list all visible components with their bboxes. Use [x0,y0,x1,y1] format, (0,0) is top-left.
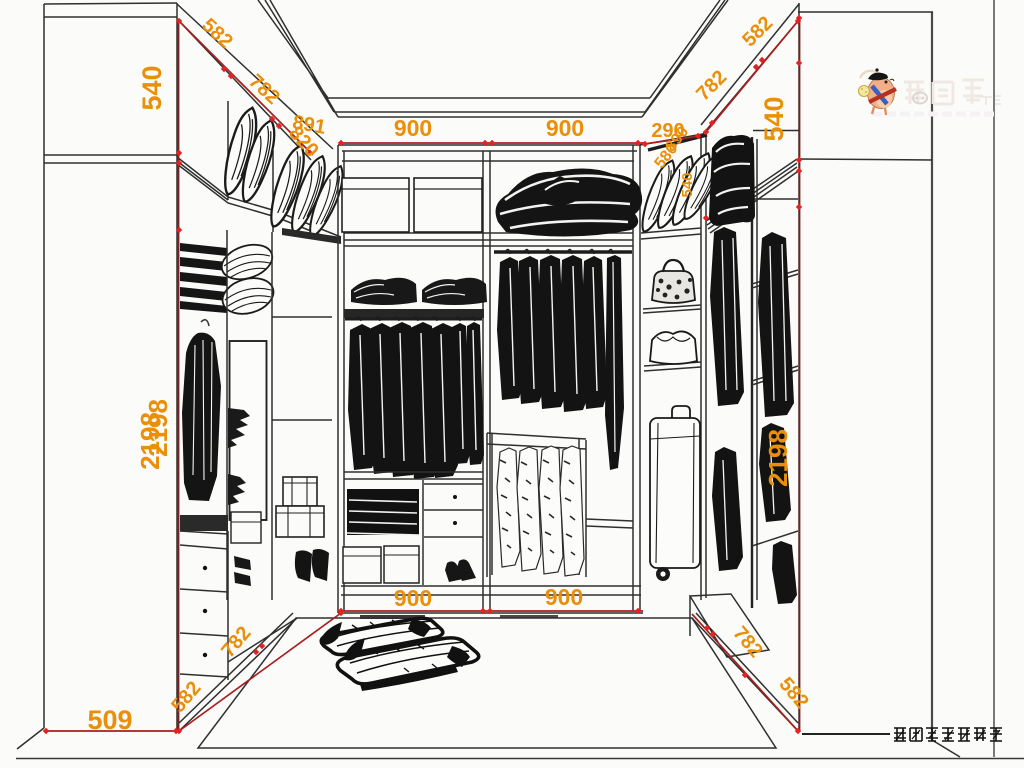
svg-text:540: 540 [679,172,696,197]
svg-text:2198: 2198 [143,399,173,457]
svg-text:509: 509 [87,705,132,735]
svg-text:900: 900 [545,584,583,610]
svg-text:540: 540 [137,65,167,110]
svg-text:540: 540 [759,96,789,141]
svg-text:2198: 2198 [763,429,793,487]
svg-text:900: 900 [546,115,584,141]
svg-text:900: 900 [394,585,432,611]
svg-text:900: 900 [394,115,432,141]
